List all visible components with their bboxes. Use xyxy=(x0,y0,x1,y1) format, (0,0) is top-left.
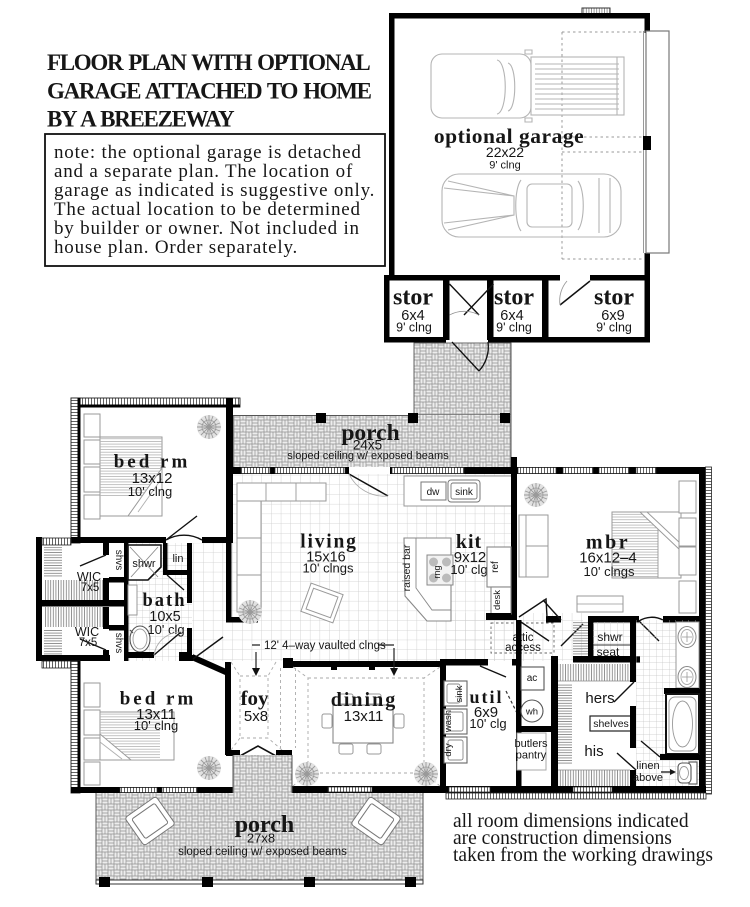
svg-text:27x8: 27x8 xyxy=(247,831,275,846)
svg-text:shvs: shvs xyxy=(113,633,124,654)
svg-text:ac: ac xyxy=(527,673,538,684)
svg-text:stor: stor xyxy=(594,285,634,311)
svg-text:7x5: 7x5 xyxy=(81,582,100,594)
svg-text:GARAGE ATTACHED TO HOME: GARAGE ATTACHED TO HOME xyxy=(47,79,372,104)
svg-text:bath: bath xyxy=(143,591,187,611)
svg-text:his: his xyxy=(584,743,603,760)
svg-text:10' clngs: 10' clngs xyxy=(303,561,354,576)
svg-text:shelves: shelves xyxy=(593,718,629,730)
svg-text:access: access xyxy=(505,642,541,654)
svg-text:by builder or owner. Not inclu: by builder or owner. Not included in xyxy=(54,218,360,239)
svg-text:sloped ceiling w/ exposed beam: sloped ceiling w/ exposed beams xyxy=(287,450,449,462)
svg-text:lin: lin xyxy=(172,553,183,565)
svg-text:10' clngs: 10' clngs xyxy=(584,564,635,579)
svg-text:shwr: shwr xyxy=(132,558,156,570)
svg-text:stor: stor xyxy=(494,285,534,311)
svg-text:note: the optional garage is d: note: the optional garage is detached xyxy=(54,142,362,163)
svg-text:sloped ceiling w/ exposed beam: sloped ceiling w/ exposed beams xyxy=(178,846,347,858)
svg-text:garage as indicated is suggest: garage as indicated is suggestive only. xyxy=(54,180,375,201)
svg-text:9' clng: 9' clng xyxy=(396,321,432,335)
svg-text:7x5: 7x5 xyxy=(79,637,98,649)
svg-text:9' clng: 9' clng xyxy=(489,160,520,172)
svg-text:10' clng: 10' clng xyxy=(134,718,178,733)
svg-text:wash: wash xyxy=(443,710,454,733)
svg-text:10' clng: 10' clng xyxy=(128,484,172,499)
svg-text:raised bar: raised bar xyxy=(401,544,413,591)
svg-text:house plan. Order separately.: house plan. Order separately. xyxy=(54,237,298,258)
svg-text:10' clg: 10' clg xyxy=(450,562,487,577)
svg-text:above: above xyxy=(633,772,663,784)
svg-text:22x22: 22x22 xyxy=(486,144,524,160)
svg-text:rng: rng xyxy=(432,565,442,578)
svg-text:foy: foy xyxy=(241,686,269,710)
svg-text:10' clg: 10' clg xyxy=(469,716,506,731)
svg-text:10' clg: 10' clg xyxy=(147,622,184,637)
svg-text:and a separate plan. The locat: and a separate plan. The location of xyxy=(54,161,353,182)
svg-text:dry: dry xyxy=(443,743,454,756)
svg-text:FLOOR PLAN WITH OPTIONAL: FLOOR PLAN WITH OPTIONAL xyxy=(47,50,370,75)
svg-text:taken from the working drawing: taken from the working drawings xyxy=(453,845,713,866)
svg-text:12' 4–way vaulted clngs: 12' 4–way vaulted clngs xyxy=(264,640,386,652)
svg-text:butlers: butlers xyxy=(514,738,548,750)
svg-text:13x11: 13x11 xyxy=(344,708,384,725)
svg-text:9' clng: 9' clng xyxy=(596,321,632,335)
svg-text:desk: desk xyxy=(492,590,503,610)
svg-text:hers: hers xyxy=(585,690,614,707)
svg-text:5x8: 5x8 xyxy=(244,708,268,725)
svg-text:sink: sink xyxy=(455,487,474,498)
svg-text:ref: ref xyxy=(490,561,501,573)
svg-text:The actual location to be dete: The actual location to be determined xyxy=(54,199,361,220)
svg-text:pantry: pantry xyxy=(516,750,547,762)
svg-text:stor: stor xyxy=(393,285,433,311)
svg-text:shwr: shwr xyxy=(597,630,622,644)
svg-text:dw: dw xyxy=(427,487,441,498)
svg-text:BY A BREEZEWAY: BY A BREEZEWAY xyxy=(47,107,235,132)
svg-text:shvs: shvs xyxy=(113,550,124,571)
svg-text:wh: wh xyxy=(525,707,538,718)
svg-text:9' clng: 9' clng xyxy=(496,321,532,335)
svg-text:sink: sink xyxy=(454,685,465,702)
svg-text:linen: linen xyxy=(636,760,659,772)
